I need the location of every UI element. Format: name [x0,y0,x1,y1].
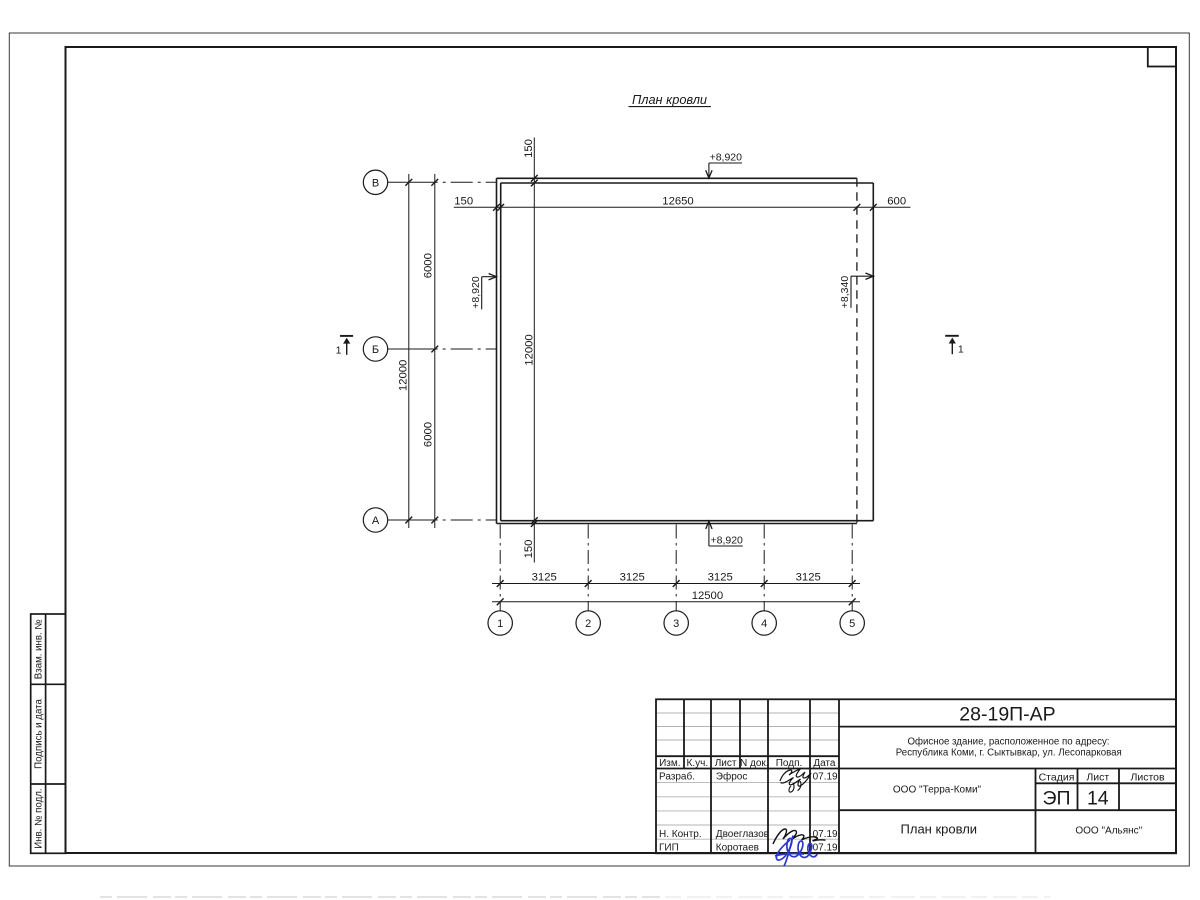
svg-text:1: 1 [336,344,342,356]
svg-text:N док.: N док. [740,758,769,769]
svg-text:3125: 3125 [620,572,645,584]
svg-text:План кровли: План кровли [901,821,978,836]
svg-text:12500: 12500 [692,590,723,602]
svg-text:3125: 3125 [796,572,821,584]
svg-text:+8,340: +8,340 [839,276,851,309]
svg-text:Инв. № подл.: Инв. № подл. [34,788,45,848]
svg-text:5: 5 [849,618,855,630]
svg-text:07.19: 07.19 [813,843,838,854]
svg-text:Листов: Листов [1130,772,1165,784]
svg-text:Н. Контр.: Н. Контр. [659,829,702,840]
svg-text:Двоеглазов: Двоеглазов [716,829,769,840]
svg-text:К.уч.: К.уч. [687,758,709,769]
svg-text:ООО "Терра-Коми": ООО "Терра-Коми" [893,784,982,795]
svg-text:150: 150 [523,540,535,559]
svg-text:Офисное здание, расположенное: Офисное здание, расположенное по адресу: [907,737,1109,748]
svg-text:4: 4 [761,618,767,630]
svg-text:3125: 3125 [708,572,733,584]
svg-text:150: 150 [523,139,535,158]
svg-text:12000: 12000 [523,334,535,365]
svg-text:В: В [372,177,379,189]
svg-text:Подп.: Подп. [776,758,803,769]
svg-text:6000: 6000 [422,253,434,278]
svg-text:Разраб.: Разраб. [659,771,695,783]
svg-text:ООО "Альянс": ООО "Альянс" [1075,825,1142,836]
svg-text:Стадия: Стадия [1039,772,1075,784]
svg-text:Изм.: Изм. [659,758,680,769]
svg-text:Лист: Лист [1086,772,1109,784]
svg-text:ЭП: ЭП [1042,788,1070,810]
svg-text:1: 1 [958,343,964,355]
svg-text:600: 600 [887,195,906,207]
svg-text:150: 150 [454,195,473,207]
svg-text:Лист: Лист [715,758,737,769]
svg-text:Взам. инв. №: Взам. инв. № [34,619,45,679]
svg-text:14: 14 [1087,788,1109,810]
svg-text:3125: 3125 [532,572,557,584]
svg-text:2: 2 [585,618,591,630]
svg-text:28-19П-АР: 28-19П-АР [959,703,1055,725]
svg-text:+8,920: +8,920 [470,276,482,309]
svg-text:Подпись и дата: Подпись и дата [34,699,45,769]
svg-text:Коротаев: Коротаев [716,843,759,854]
svg-text:+8,920: +8,920 [710,535,743,547]
svg-text:07.19: 07.19 [813,772,838,783]
svg-text:Республика Коми, г. Сыктывкар,: Республика Коми, г. Сыктывкар, ул. Лесоп… [896,747,1122,758]
svg-text:Б: Б [372,344,379,356]
svg-text:А: А [372,515,380,527]
svg-text:12650: 12650 [662,195,693,207]
svg-text:+8,920: +8,920 [710,151,743,163]
svg-text:3: 3 [673,618,679,630]
svg-text:ГИП: ГИП [659,843,679,854]
svg-text:1: 1 [497,618,503,630]
svg-text:6000: 6000 [422,422,434,447]
svg-text:Дата: Дата [813,758,836,769]
svg-text:План кровли: План кровли [632,92,707,107]
svg-text:12000: 12000 [397,360,409,391]
svg-text:Эфрос: Эфрос [716,771,748,783]
